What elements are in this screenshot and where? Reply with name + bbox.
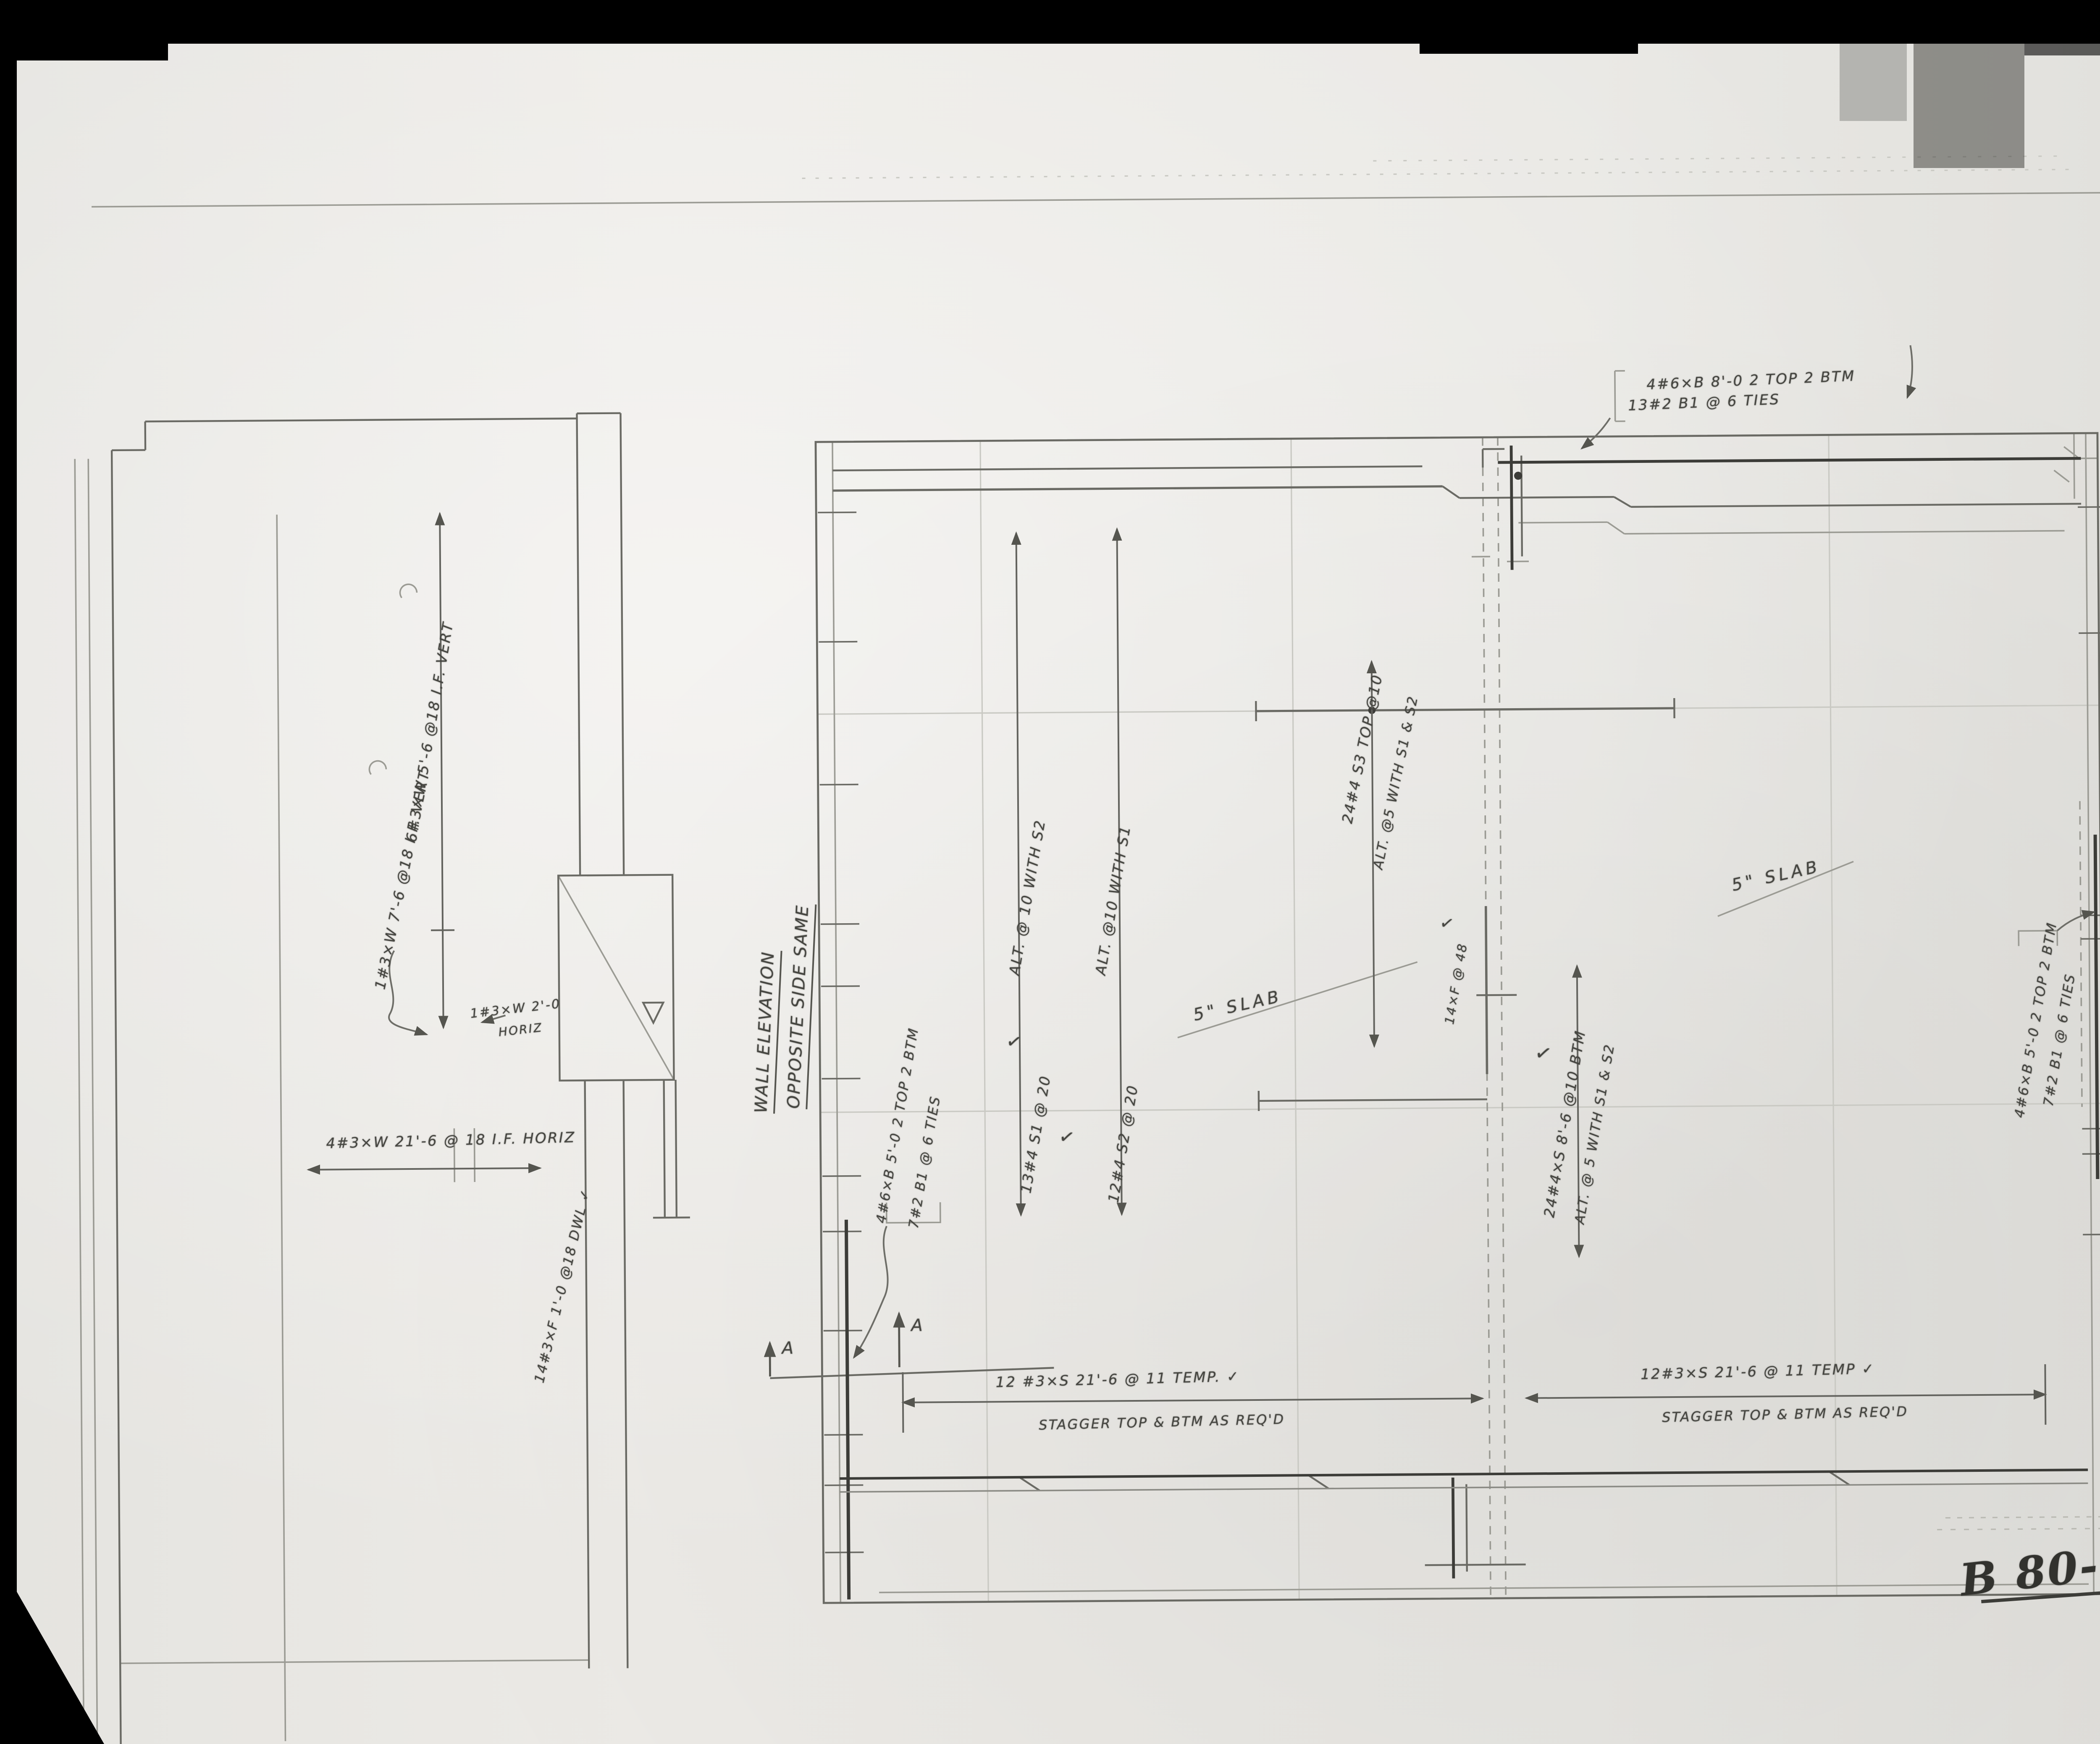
s1-alt-note: ALT. @ 10 WITH S2	[1008, 818, 1050, 977]
check-s2: ✓	[1057, 1125, 1078, 1150]
temp-note-right-1: 12#3×S 21'-6 @ 11 TEMP ✓	[1641, 1362, 1875, 1384]
wall-tie-note-2: HORIZ	[498, 1021, 543, 1040]
wall-elevation-subtitle: OPPOSITE SIDE SAME	[785, 904, 816, 1109]
microfilm-frame: 1#3×W 7'-6 @18 I.F. VERT6#3×W 5'-6 @18 I…	[0, 0, 2100, 1744]
film-edge-top-left	[0, 0, 168, 60]
section-label-right: A	[911, 1318, 924, 1336]
s1-note: 13#4 S1 @ 20	[1019, 1074, 1055, 1195]
temp-note-left-1: 12 #3×S 21'-6 @ 11 TEMP. ✓	[995, 1369, 1240, 1392]
slab-label-left: 5" SLAB	[1192, 988, 1284, 1026]
film-edge-top-mid	[1420, 0, 1638, 54]
slab-label-right: 5" SLAB	[1730, 859, 1822, 896]
s2-note: 12#4 S2 @ 20	[1106, 1084, 1143, 1204]
film-edge-top	[0, 0, 2100, 44]
scan-smudge	[1914, 44, 2024, 168]
wall-elevation-title: WALL ELEVATION	[753, 951, 782, 1114]
check-s1: ✓	[1004, 1030, 1025, 1055]
check-joint: ✓	[1438, 914, 1457, 935]
top-beam-note-1: 4#6×B 8'-0 2 TOP 2 BTM	[1646, 369, 1856, 394]
s3-note-1: 24#4 S3 TOP @10	[1340, 673, 1387, 825]
temp-note-right-2: STAGGER TOP & BTM AS REQ'D	[1662, 1404, 1908, 1425]
s3-note-2: ALT. @5 WITH S1 & S2	[1371, 694, 1421, 871]
film-edge-left	[0, 0, 17, 1744]
top-beam-note-2: 13#2 B1 @ 6 TIES	[1628, 392, 1781, 415]
wall-tie-note: 1#3×W 2'-0	[470, 996, 562, 1021]
wall-vert-note-2: 6#3×W 5'-6 @18 I.F. VERT	[404, 620, 458, 843]
scan-tilt-wrapper: 1#3×W 7'-6 @18 I.F. VERT6#3×W 5'-6 @18 I…	[0, 0, 2100, 1744]
drawing-sheet: 1#3×W 7'-6 @18 I.F. VERT6#3×W 5'-6 @18 I…	[17, 10, 2100, 1744]
joint-note: 14×F @ 48	[1442, 942, 1470, 1026]
temp-note-left-2: STAGGER TOP & BTM AS REQ'D	[1039, 1412, 1285, 1433]
annotations-layer: 1#3×W 7'-6 @18 I.F. VERT6#3×W 5'-6 @18 I…	[0, 0, 2100, 1744]
scan-smudge-2	[1840, 44, 1907, 121]
section-label-left: A	[782, 1340, 795, 1359]
s2-alt-note: ALT. @10 WITH S1	[1094, 824, 1136, 977]
wall-horiz-note: 4#3×W 21'-6 @ 18 I.F. HORIZ	[326, 1130, 576, 1153]
wall-dwl-note: 14#3×F 1'-0 @18 DWL ✓	[532, 1187, 594, 1384]
film-edge-top-right	[2024, 40, 2100, 55]
sheet-number: B 80-18	[1958, 1534, 2100, 1607]
check-btm: ✓	[1533, 1040, 1555, 1067]
edge-beam-note-left-2: 7#2 B1 @ 6 TIES	[906, 1095, 943, 1230]
